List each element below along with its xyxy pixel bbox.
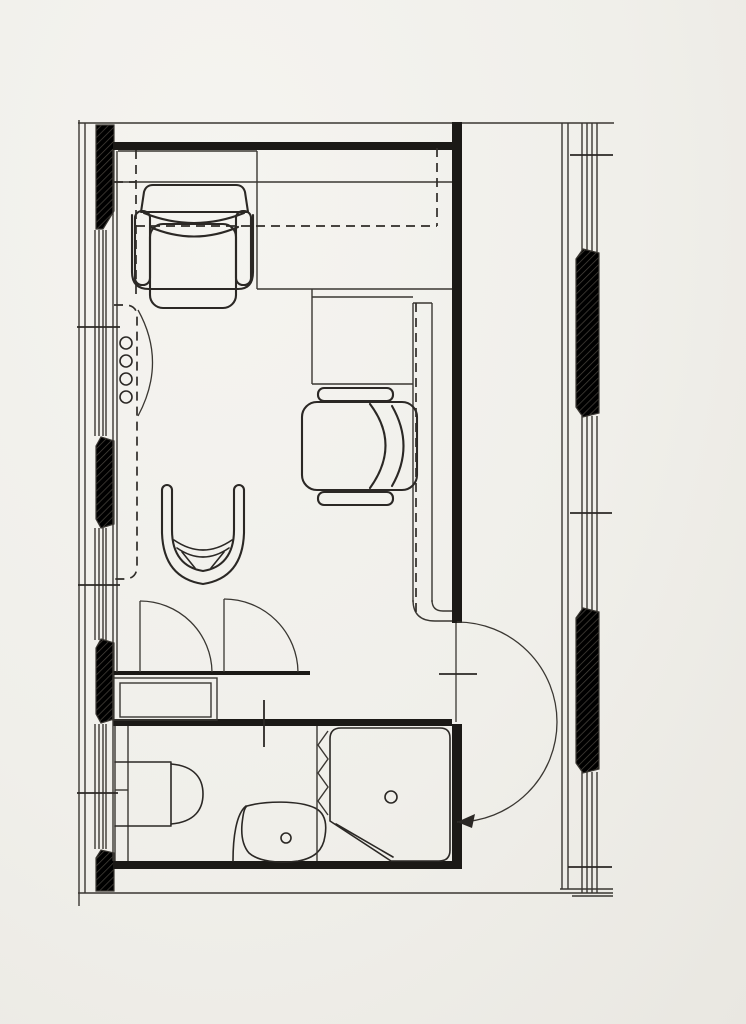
room-right-wall-upper (452, 122, 462, 623)
closet-box-inner (120, 683, 211, 717)
corridor-wall-post (576, 608, 599, 773)
floor-plan-sheet (0, 0, 746, 1024)
desk-chair-seat (302, 402, 417, 490)
lounge-chair-back (141, 185, 248, 212)
plan-layer (77, 120, 614, 906)
folding-door-zigzag (318, 731, 328, 815)
side-chair-frame (162, 485, 244, 584)
wardrobe-hook (120, 373, 132, 385)
desk-slab-bottom-inner (432, 600, 452, 611)
desk-chair-arm-bottom (318, 492, 393, 505)
floor-plan-drawing (0, 0, 746, 1024)
wardrobe-hook (120, 355, 132, 367)
left-wall-post (96, 639, 114, 723)
corridor-wall-post (576, 249, 599, 417)
lounge-chair-arm-right (236, 211, 251, 285)
lounge-chair-cushion-arc-2 (150, 227, 238, 237)
shower-tray (330, 728, 450, 861)
desk-chair-back-arc-1 (370, 404, 386, 488)
bathroom-door-swing (224, 599, 298, 672)
wardrobe-swing-arc (138, 310, 153, 416)
left-wall-post (96, 437, 114, 528)
left-wall-post (96, 125, 114, 229)
left-wall-post (96, 850, 114, 891)
wardrobe-hook (120, 391, 132, 403)
desk-chair-back-arc-2 (392, 406, 404, 486)
lounge-chair-cushion-arc-1 (144, 213, 244, 223)
room-top-wall (113, 142, 458, 150)
shower-drain (385, 791, 397, 803)
entry-door-swing (457, 622, 557, 822)
shower-tray-inner-diagonal (336, 824, 393, 857)
wardrobe-hook (120, 337, 132, 349)
closet-door-swing (140, 601, 212, 672)
desk-chair-arm-top (318, 388, 393, 401)
room-right-wall-lower (452, 724, 462, 869)
washbasin (242, 802, 326, 862)
washbasin-drain (281, 833, 291, 843)
side-chair-seat-arc-1 (174, 540, 232, 550)
lounge-chair-arm-left (135, 211, 150, 285)
closet-box-outer (113, 678, 217, 720)
toilet-bowl (171, 764, 203, 824)
